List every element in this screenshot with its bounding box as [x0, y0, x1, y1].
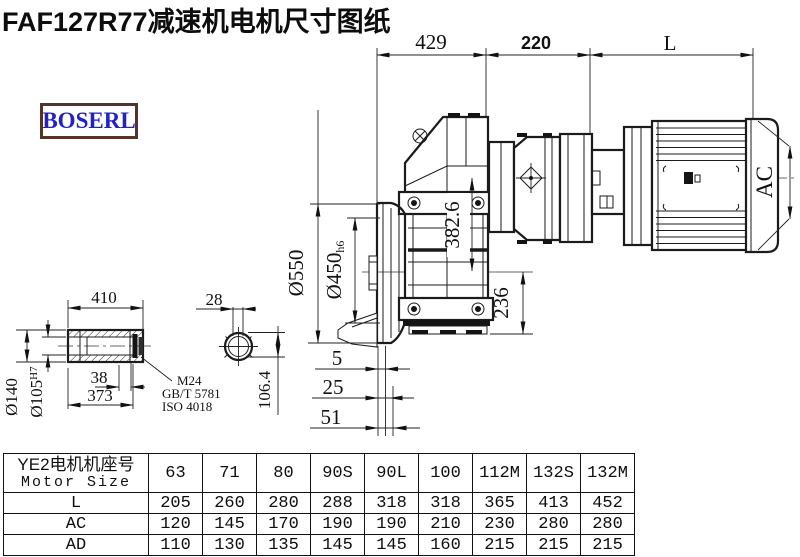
table-cell: 452 — [581, 493, 635, 514]
table-cell: 215 — [527, 535, 581, 556]
drawing-sheet: FAF127R77减速机电机尺寸图纸 BOSERL 429 220 L — [0, 0, 800, 557]
table-column-header: 63 — [149, 454, 203, 493]
table-column-header: 80 — [257, 454, 311, 493]
dim-382-6: 382.6 — [440, 201, 464, 248]
gearmotor-input-assembly — [489, 127, 652, 245]
table-cell: 210 — [419, 514, 473, 535]
table-row-label: AD — [4, 535, 149, 556]
table-cell: 130 — [203, 535, 257, 556]
table-row: L205260280288318318365413452 — [4, 493, 635, 514]
table-cell: 280 — [581, 514, 635, 535]
table-cell: 110 — [149, 535, 203, 556]
table-header-cn: YE2电机机座号 — [4, 455, 148, 474]
table-cell: 160 — [419, 535, 473, 556]
table-cell: 215 — [473, 535, 527, 556]
motor-size-table: YE2电机机座号 Motor Size 63718090S90L100112M1… — [3, 453, 635, 556]
flange-diameter-dimensions: Ø550 Ø450h6 — [284, 110, 380, 343]
table-column-header: 71 — [203, 454, 257, 493]
dim-L: L — [664, 31, 677, 55]
table-cell: 280 — [257, 493, 311, 514]
table-cell: 190 — [365, 514, 419, 535]
dim-38: 38 — [91, 368, 108, 387]
table-cell: 170 — [257, 514, 311, 535]
table-cell: 135 — [257, 535, 311, 556]
table-row-label: L — [4, 493, 149, 514]
dim-25: 25 — [323, 375, 344, 399]
table-cell: 260 — [203, 493, 257, 514]
dim-236: 236 — [489, 287, 513, 319]
terminal-box — [684, 172, 693, 184]
dim-d105h7: Ø105H7 — [27, 366, 46, 418]
table-column-header: 100 — [419, 454, 473, 493]
dim-373: 373 — [87, 386, 113, 405]
table-cell: 145 — [365, 535, 419, 556]
dim-d140: Ø140 — [2, 378, 21, 416]
output-flange — [338, 203, 405, 436]
table-column-header: 132M — [581, 454, 635, 493]
table-row: AC120145170190190210230280280 — [4, 514, 635, 535]
dim-106-4: 106.4 — [255, 370, 274, 409]
dim-28: 28 — [206, 290, 223, 309]
table-cell: 288 — [311, 493, 365, 514]
dim-220: 220 — [521, 33, 551, 53]
note-iso-4018: ISO 4018 — [162, 399, 212, 414]
dimension-drawing: 429 220 L — [0, 0, 800, 450]
table-column-header: 112M — [473, 454, 527, 493]
table-column-header: 90S — [311, 454, 365, 493]
table-header-row: YE2电机机座号 Motor Size 63718090S90L100112M1… — [4, 454, 635, 493]
table-cell: 230 — [473, 514, 527, 535]
dim-410: 410 — [91, 288, 117, 307]
table-body: L205260280288318318365413452AC1201451701… — [4, 493, 635, 556]
table-column-header: 90L — [365, 454, 419, 493]
table-cell: 215 — [581, 535, 635, 556]
table-cell: 318 — [365, 493, 419, 514]
table-cell: 120 — [149, 514, 203, 535]
dim-51: 51 — [321, 405, 342, 429]
hollow-shaft-detail: 410 Ø140 Ø105H7 38 373 M24 — [2, 288, 221, 418]
table-cell: 318 — [419, 493, 473, 514]
table-header-en: Motor Size — [4, 474, 148, 491]
table-cell: 365 — [473, 493, 527, 514]
dim-5: 5 — [332, 346, 343, 370]
table-header-motor-size: YE2电机机座号 Motor Size — [4, 454, 149, 493]
table-column-header: 132S — [527, 454, 581, 493]
table-cell: 145 — [311, 535, 365, 556]
dim-AC: AC — [752, 166, 777, 198]
table-row-label: AC — [4, 514, 149, 535]
dim-d450h6: Ø450h6 — [322, 241, 347, 300]
table-cell: 205 — [149, 493, 203, 514]
flange-offset-dimensions: 5 25 51 — [310, 346, 420, 429]
dim-429: 429 — [415, 30, 447, 54]
table-row: AD110130135145145160215215215 — [4, 535, 635, 556]
table-cell: 145 — [203, 514, 257, 535]
dim-d550: Ø550 — [284, 250, 308, 297]
table-cell: 413 — [527, 493, 581, 514]
table-cell: 190 — [311, 514, 365, 535]
table-cell: 280 — [527, 514, 581, 535]
